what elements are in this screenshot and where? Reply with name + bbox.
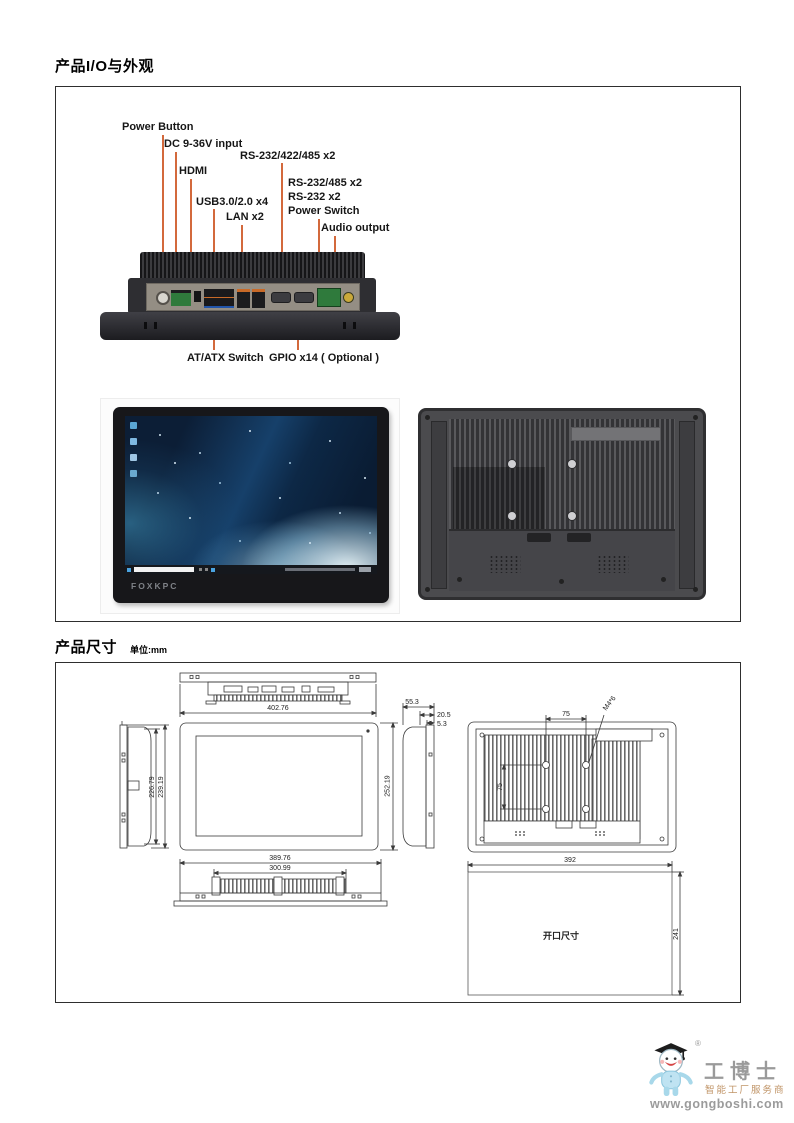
dim-vesa-vertical: 75 bbox=[497, 783, 504, 791]
lan-port-1 bbox=[237, 289, 250, 308]
label-power-switch: Power Switch bbox=[288, 204, 362, 218]
logo-tagline: 智能工厂服务商 bbox=[705, 1082, 786, 1096]
label-at-atx-switch: AT/ATX Switch bbox=[187, 352, 264, 364]
taskbar-icon bbox=[205, 568, 208, 571]
rear-com-port bbox=[527, 533, 551, 542]
dimension-drawings: 402.76 252.19 226.79 239.19 55.3 20.5 5.… bbox=[56, 663, 740, 1001]
dim-bottom-width-outer: 389.76 bbox=[269, 855, 291, 862]
io-recess bbox=[146, 283, 360, 311]
front-bezel-edge bbox=[100, 312, 400, 340]
hdmi-port bbox=[194, 291, 201, 302]
front-view-photo: FOXKPC bbox=[100, 398, 400, 614]
dim-vesa-horizontal: 75 bbox=[562, 711, 570, 718]
rear-device-body bbox=[418, 408, 706, 600]
mount-bracket-right bbox=[679, 421, 695, 589]
system-tray bbox=[285, 568, 355, 571]
logo-website: www.gongboshi.com bbox=[650, 1097, 784, 1111]
io-rear-photo bbox=[100, 250, 400, 345]
label-rs232-422-485: RS-232/422/485 x2 bbox=[240, 150, 335, 162]
screw bbox=[559, 579, 564, 584]
section-io-title: 产品I/O与外观 bbox=[55, 55, 154, 76]
dim-vesa-screw: M4*6 bbox=[602, 695, 618, 712]
dc-terminal bbox=[171, 290, 191, 306]
dim-depth-bezel: 5.3 bbox=[437, 721, 447, 728]
dim-cutout-height: 241 bbox=[673, 928, 680, 940]
dim-cutout-width: 392 bbox=[564, 857, 576, 864]
power-button bbox=[156, 291, 170, 305]
dim-front-height: 252.19 bbox=[385, 775, 392, 797]
screw bbox=[457, 577, 462, 582]
label-usb: USB3.0/2.0 x4 bbox=[196, 196, 268, 208]
taskbar-icon bbox=[199, 568, 202, 571]
front-device-bezel: FOXKPC bbox=[113, 407, 389, 603]
dim-side-height-inner: 226.79 bbox=[149, 776, 156, 798]
com-port-2 bbox=[294, 292, 314, 303]
start-icon bbox=[127, 568, 131, 572]
speaker-grille-left bbox=[489, 555, 521, 573]
dim-side-height-outer: 239.19 bbox=[158, 776, 165, 798]
screw bbox=[693, 415, 698, 420]
vesa-screw bbox=[507, 511, 517, 521]
com-port-1 bbox=[271, 292, 291, 303]
rear-com-port bbox=[567, 533, 591, 542]
rear-heatsink bbox=[449, 419, 675, 529]
gpio-terminal bbox=[317, 288, 341, 307]
mascot-icon bbox=[645, 1039, 697, 1097]
footer-logo: ® 工博士 智能工厂服务商 www.gongboshi.com bbox=[640, 1033, 790, 1118]
screen-wallpaper bbox=[125, 416, 377, 565]
label-power-button: Power Button bbox=[122, 121, 194, 133]
rear-view-photo bbox=[410, 398, 712, 612]
heatsink-recess bbox=[453, 467, 545, 529]
front-brand-text: FOXKPC bbox=[131, 581, 178, 591]
dim-depth-total: 55.3 bbox=[405, 699, 419, 706]
vesa-screw bbox=[567, 511, 577, 521]
label-rs-group: RS-232/485 x2 RS-232 x2 Power Switch bbox=[288, 176, 362, 218]
clock bbox=[359, 567, 371, 572]
vesa-screw bbox=[567, 459, 577, 469]
usb-ports-bottom bbox=[204, 298, 234, 308]
rear-bottom-panel bbox=[449, 529, 675, 591]
label-gpio: GPIO x14 ( Optional ) bbox=[269, 352, 379, 364]
bezel-slot bbox=[353, 322, 356, 329]
label-rs232-x2: RS-232 x2 bbox=[288, 190, 362, 204]
label-lan: LAN x2 bbox=[226, 211, 264, 223]
bezel-slot bbox=[343, 322, 346, 329]
mount-bracket-left bbox=[431, 421, 447, 589]
registered-mark: ® bbox=[695, 1039, 701, 1048]
label-hdmi: HDMI bbox=[179, 165, 207, 177]
screw bbox=[693, 587, 698, 592]
bezel-slot bbox=[144, 322, 147, 329]
speaker-grille-right bbox=[597, 555, 629, 573]
section-dim-title: 产品尺寸 bbox=[55, 636, 117, 657]
dim-depth-body: 20.5 bbox=[437, 712, 451, 719]
cutout-label: 开口尺寸 bbox=[543, 930, 579, 941]
label-audio-output: Audio output bbox=[321, 222, 389, 234]
rear-label-plate bbox=[571, 427, 661, 441]
logo-brand-name: 工博士 bbox=[704, 1055, 782, 1084]
taskbar bbox=[125, 565, 377, 574]
audio-jack bbox=[343, 292, 354, 303]
desktop-icon bbox=[130, 470, 137, 477]
desktop-icon bbox=[130, 422, 137, 429]
label-dc-input: DC 9-36V input bbox=[164, 138, 242, 150]
taskbar-icon bbox=[211, 568, 215, 572]
desktop-icon bbox=[130, 454, 137, 461]
dim-bottom-width-inner: 300.99 bbox=[269, 865, 291, 872]
section-dim-unit: 单位:mm bbox=[130, 643, 167, 656]
lan-port-2 bbox=[252, 289, 265, 308]
screw bbox=[425, 415, 430, 420]
screw bbox=[661, 577, 666, 582]
label-rs232-485: RS-232/485 x2 bbox=[288, 176, 362, 190]
vesa-screw bbox=[507, 459, 517, 469]
screw bbox=[425, 587, 430, 592]
bezel-slot bbox=[154, 322, 157, 329]
desktop-icon bbox=[130, 438, 137, 445]
datasheet-page: 产品I/O与外观 Power Button DC 9-36V input RS-… bbox=[0, 0, 794, 1123]
search-box bbox=[134, 567, 194, 572]
dim-front-width: 402.76 bbox=[267, 705, 289, 712]
